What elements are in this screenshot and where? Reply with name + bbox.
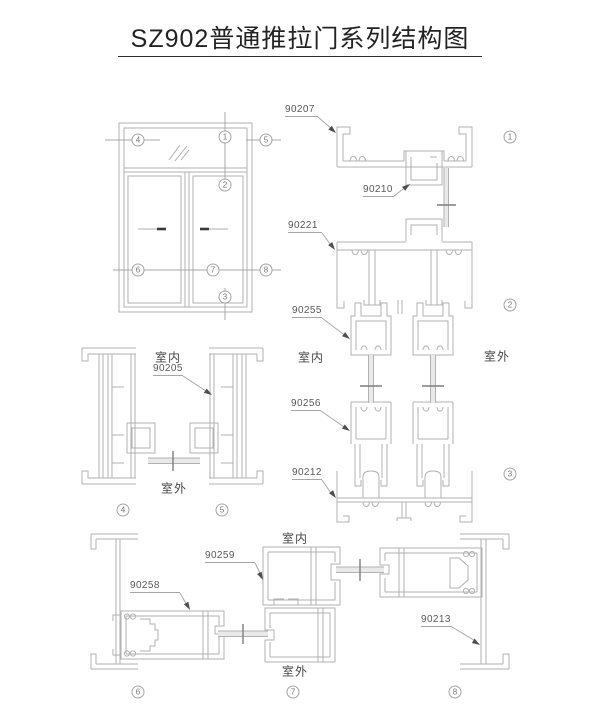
glass-pane-7 — [336, 559, 384, 581]
profile-90221 — [337, 219, 472, 314]
profile-90212 — [337, 471, 472, 522]
elevation-callout: 8 — [260, 264, 273, 277]
glass-pane-45 — [148, 451, 200, 471]
profile-90259-interlock — [263, 547, 340, 662]
profile-90213-jamb-right — [460, 534, 509, 669]
part-label: 90210 — [363, 184, 393, 197]
glass-pane-mid-left — [360, 355, 382, 403]
room-label: 室外 — [161, 480, 187, 497]
part-label: 90207 — [285, 104, 318, 117]
section-marker: 7 — [287, 686, 300, 699]
section-marker: 2 — [504, 299, 517, 312]
section-marker: 1 — [504, 131, 517, 144]
glass-hatch-icon — [169, 145, 189, 161]
profile-90210 — [406, 151, 442, 185]
profile-90256-right — [413, 402, 453, 486]
profile-90255-right — [413, 303, 453, 355]
elevation-callout: 5 — [260, 134, 273, 147]
elevation-callout: 6 — [132, 264, 145, 277]
part-label: 90221 — [288, 220, 322, 233]
elevation-callout: 3 — [219, 291, 232, 304]
section-marker: 5 — [216, 504, 229, 517]
profile-90258 — [113, 611, 224, 659]
elevation-callout: 4 — [132, 134, 145, 147]
profile-90256-left — [351, 402, 391, 486]
drawing-sheet: SZ902普通推拉门系列结构图 — [0, 0, 600, 723]
profile-jamb-left-45 — [82, 348, 155, 484]
part-label: 90213 — [421, 614, 452, 627]
part-label: 90255 — [292, 305, 322, 318]
room-label: 室外 — [282, 663, 308, 680]
room-label: 室内 — [282, 530, 308, 547]
part-label: 90256 — [291, 398, 321, 411]
part-label: 90259 — [205, 550, 255, 563]
elevation-callout: 2 — [219, 179, 232, 192]
part-label: 90212 — [292, 467, 322, 480]
glass-pane-mid-right — [422, 355, 444, 403]
section-marker: 3 — [504, 468, 517, 481]
elevation-callout: 7 — [207, 264, 220, 277]
profile-90205-jamb-right — [190, 348, 263, 484]
room-label: 室内 — [298, 349, 324, 366]
profile-sash-right-8 — [380, 548, 482, 597]
part-label: 90258 — [130, 580, 180, 593]
room-label: 室外 — [484, 348, 510, 365]
section-marker: 6 — [132, 686, 145, 699]
profile-90255-left — [351, 303, 391, 355]
section-marker: 8 — [449, 686, 462, 699]
section-marker: 4 — [117, 504, 130, 517]
room-label: 室内 — [155, 349, 181, 366]
profile-jamb-left-6 — [91, 534, 138, 669]
profile-90207 — [337, 127, 472, 167]
glass-pane-top — [437, 168, 456, 227]
glass-pane-6 — [218, 624, 268, 644]
elevation-callout: 1 — [219, 131, 232, 144]
